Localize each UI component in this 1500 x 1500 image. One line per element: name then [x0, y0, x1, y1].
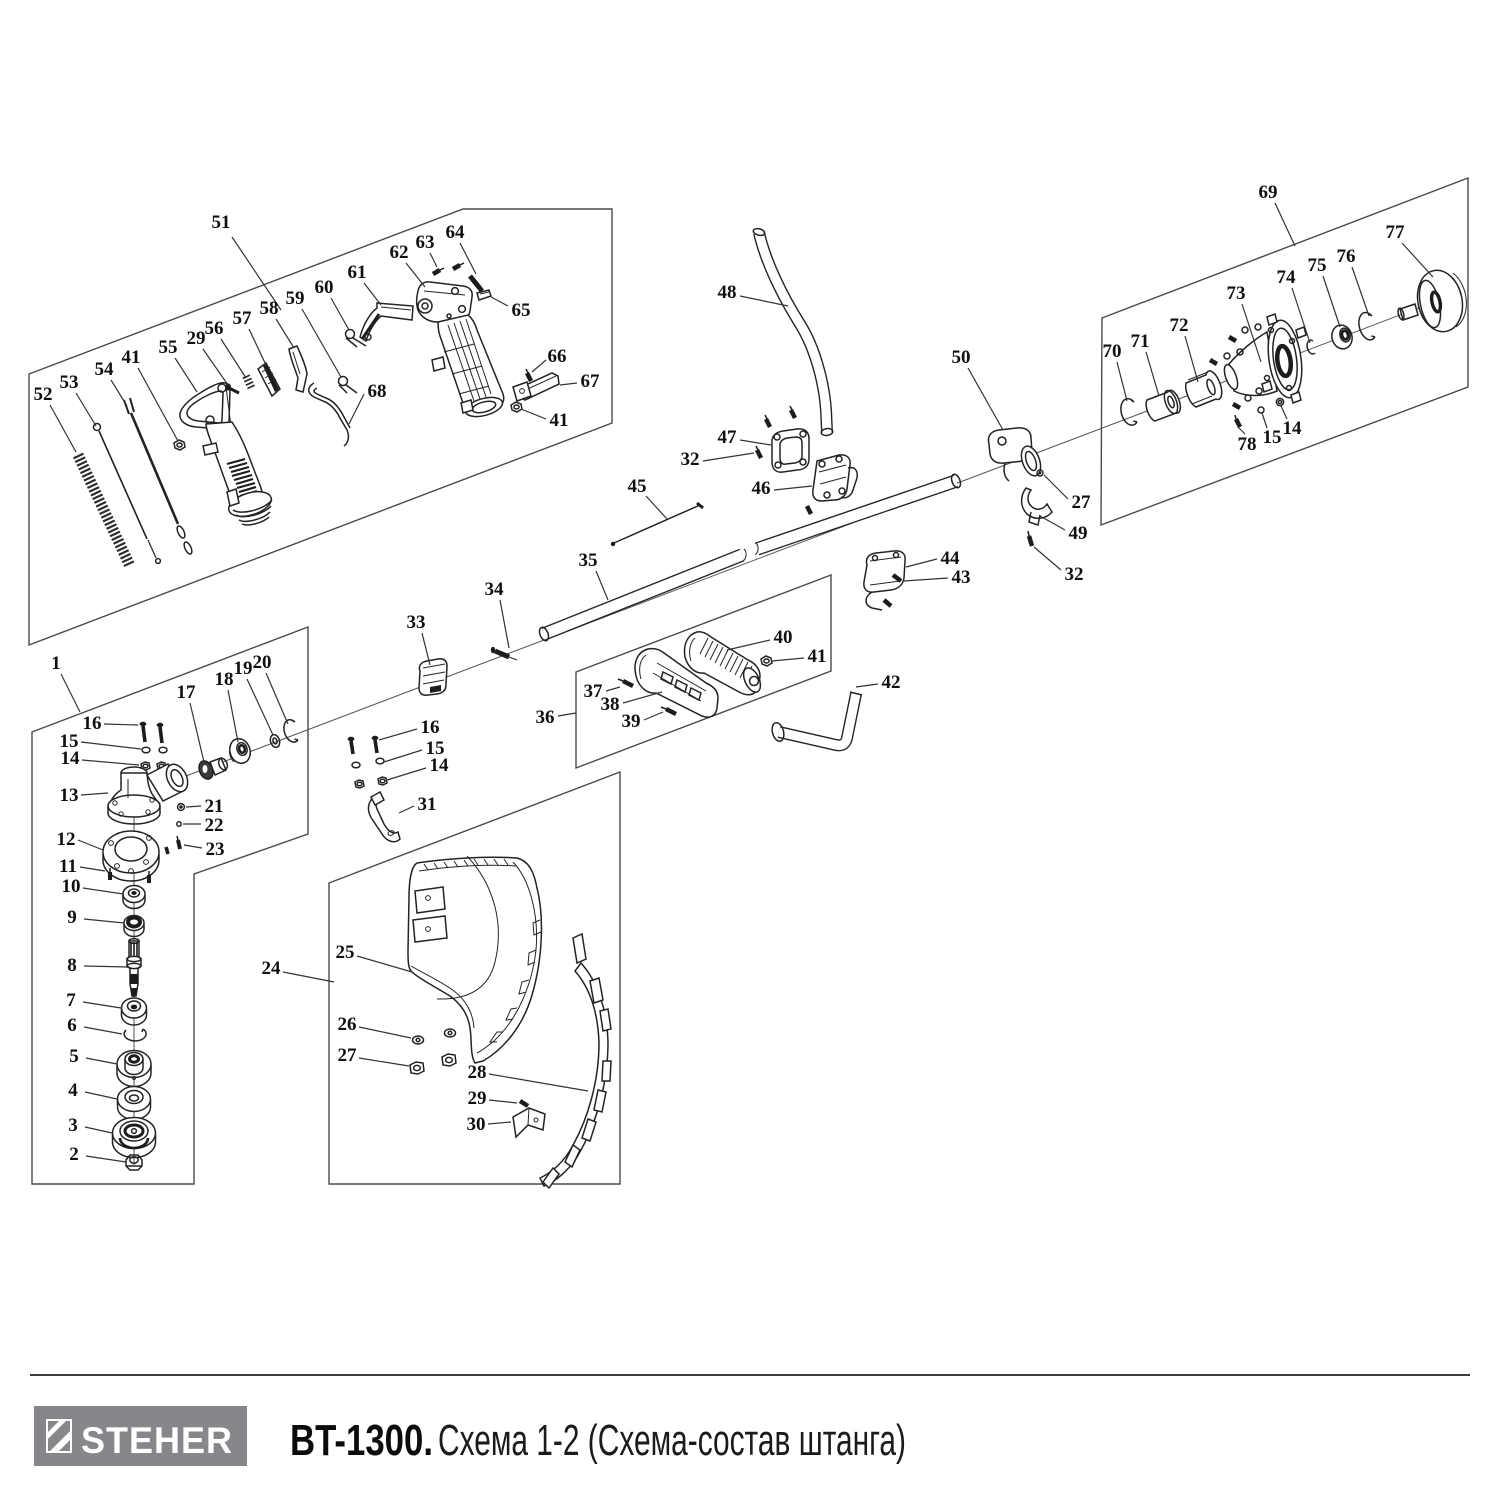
svg-text:6: 6 [67, 1015, 77, 1036]
svg-text:58: 58 [260, 298, 279, 319]
svg-text:43: 43 [952, 567, 971, 588]
svg-text:68: 68 [368, 381, 387, 402]
svg-text:30: 30 [467, 1114, 486, 1135]
svg-text:55: 55 [159, 337, 178, 358]
svg-text:59: 59 [286, 288, 305, 309]
svg-text:1: 1 [51, 653, 61, 674]
svg-text:41: 41 [808, 646, 827, 667]
svg-text:32: 32 [681, 449, 700, 470]
svg-text:41: 41 [122, 347, 141, 368]
svg-text:29: 29 [187, 328, 206, 349]
svg-text:39: 39 [622, 711, 641, 732]
svg-text:27: 27 [338, 1045, 358, 1066]
svg-text:14: 14 [430, 755, 450, 776]
svg-text:3: 3 [68, 1115, 78, 1136]
svg-text:33: 33 [407, 612, 426, 633]
svg-text:64: 64 [446, 222, 466, 243]
svg-text:70: 70 [1103, 341, 1122, 362]
svg-text:46: 46 [752, 478, 771, 499]
svg-text:25: 25 [336, 942, 355, 963]
svg-text:14: 14 [1283, 418, 1303, 439]
svg-text:11: 11 [59, 856, 77, 877]
svg-text:19: 19 [234, 658, 253, 679]
svg-text:20: 20 [253, 652, 272, 673]
svg-text:32: 32 [1065, 564, 1084, 585]
svg-text:2: 2 [69, 1144, 79, 1165]
svg-text:15: 15 [1263, 427, 1282, 448]
svg-text:23: 23 [206, 839, 225, 860]
svg-text:26: 26 [338, 1014, 357, 1035]
svg-text:40: 40 [774, 627, 793, 648]
svg-text:13: 13 [60, 785, 79, 806]
svg-text:74: 74 [1277, 267, 1297, 288]
svg-text:54: 54 [95, 359, 115, 380]
svg-text:9: 9 [67, 907, 77, 928]
svg-text:35: 35 [579, 550, 598, 571]
svg-text:Схема 1-2 (Схема-состав штанга: Схема 1-2 (Схема-состав штанга) [438, 1416, 906, 1465]
svg-text:42: 42 [882, 672, 901, 693]
svg-text:14: 14 [61, 748, 81, 769]
svg-text:71: 71 [1131, 331, 1150, 352]
svg-text:24: 24 [262, 958, 282, 979]
svg-text:63: 63 [416, 232, 435, 253]
svg-text:36: 36 [536, 707, 555, 728]
svg-text:73: 73 [1227, 283, 1246, 304]
svg-text:34: 34 [485, 579, 505, 600]
svg-text:16: 16 [421, 717, 440, 738]
svg-text:STEHER: STEHER [81, 1420, 233, 1461]
svg-text:66: 66 [548, 346, 567, 367]
svg-text:69: 69 [1259, 182, 1278, 203]
svg-text:22: 22 [205, 815, 224, 836]
svg-text:76: 76 [1337, 246, 1356, 267]
svg-text:48: 48 [718, 282, 737, 303]
svg-text:16: 16 [83, 713, 102, 734]
svg-text:5: 5 [69, 1046, 79, 1067]
svg-text:53: 53 [60, 372, 79, 393]
svg-text:57: 57 [233, 308, 253, 329]
svg-text:62: 62 [390, 242, 409, 263]
svg-text:56: 56 [205, 318, 224, 339]
svg-text:41: 41 [550, 410, 569, 431]
svg-text:78: 78 [1238, 434, 1257, 455]
svg-text:61: 61 [348, 262, 367, 283]
svg-text:17: 17 [177, 682, 197, 703]
svg-text:18: 18 [215, 669, 234, 690]
svg-text:38: 38 [601, 694, 620, 715]
svg-text:BT-1300.: BT-1300. [290, 1416, 433, 1465]
svg-text:8: 8 [67, 955, 77, 976]
svg-text:7: 7 [66, 990, 76, 1011]
svg-text:65: 65 [512, 300, 531, 321]
svg-text:12: 12 [57, 829, 76, 850]
svg-text:67: 67 [581, 371, 601, 392]
svg-text:28: 28 [468, 1062, 487, 1083]
svg-text:44: 44 [941, 548, 961, 569]
svg-text:52: 52 [34, 384, 53, 405]
svg-text:49: 49 [1069, 523, 1088, 544]
svg-text:10: 10 [62, 876, 81, 897]
svg-text:75: 75 [1308, 255, 1327, 276]
svg-text:29: 29 [468, 1088, 487, 1109]
svg-text:27: 27 [1072, 492, 1092, 513]
svg-text:51: 51 [212, 212, 231, 233]
svg-text:72: 72 [1170, 315, 1189, 336]
svg-text:45: 45 [628, 476, 647, 497]
svg-text:31: 31 [418, 794, 437, 815]
svg-text:21: 21 [205, 796, 224, 817]
svg-text:47: 47 [718, 427, 738, 448]
svg-text:4: 4 [68, 1080, 78, 1101]
svg-text:50: 50 [952, 347, 971, 368]
svg-text:60: 60 [315, 277, 334, 298]
svg-text:77: 77 [1386, 222, 1406, 243]
